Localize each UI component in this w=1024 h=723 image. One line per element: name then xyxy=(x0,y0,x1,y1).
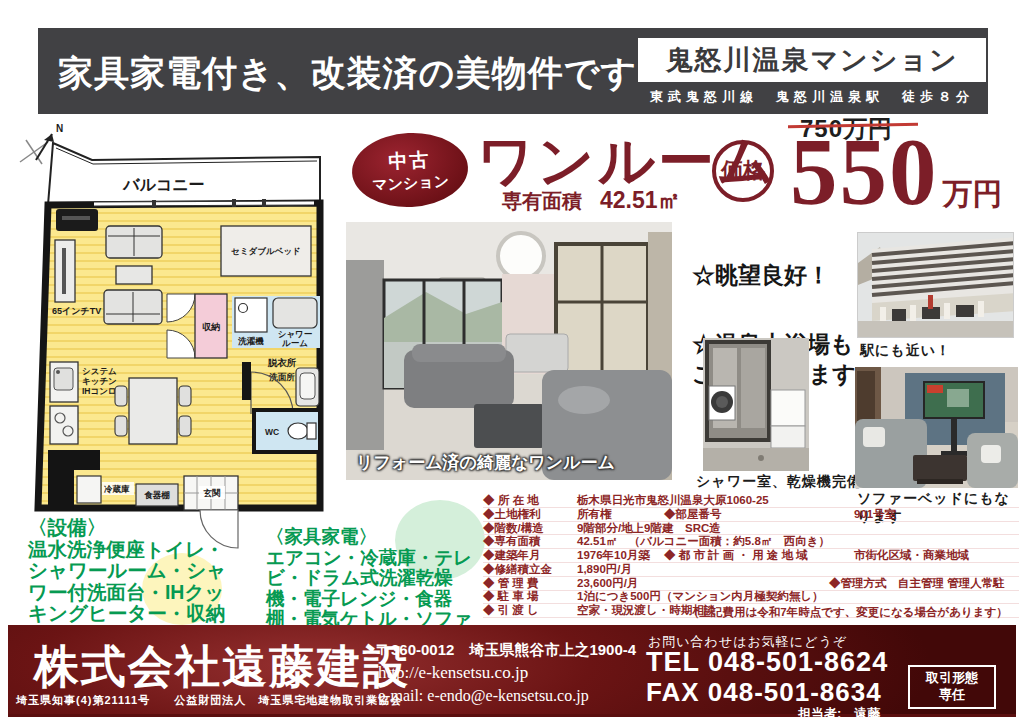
furniture-title: 〈家具家電〉 xyxy=(266,527,488,548)
floor-plan: N バルコニー 65インチTV セミダブルベッド 収納 xyxy=(14,118,336,552)
deal-type-box: 取引形態 専任 xyxy=(908,665,996,709)
shower-photo-caption: シャワー室、乾燥機完備 xyxy=(696,473,862,491)
building-photo-caption: 駅にも近い！ xyxy=(860,342,951,360)
fax-number: FAX 048-501-8634 xyxy=(646,677,882,708)
fridge-label: 冷蔵庫 xyxy=(104,484,130,494)
headline: 家具家電付き、改装済の美物件です xyxy=(58,50,637,97)
balcony-label: バルコニー xyxy=(122,176,205,193)
washer-label: 洗濯機 xyxy=(237,336,264,346)
closet-label: 収納 xyxy=(202,322,220,332)
main-room-photo: リフォーム済の綺麗なワンルーム xyxy=(346,222,672,480)
kitchen-label: システム xyxy=(82,366,117,376)
dressing-room-label: 脱衣所 xyxy=(267,357,297,368)
equipment-title: 〈設備〉 xyxy=(28,517,232,539)
details-note: （上記費用は令和7年時点です、変更になる場合があります） xyxy=(688,605,1008,620)
tv-label: 65インチTV xyxy=(52,306,101,316)
property-details-table: ◆ 所 在 地栃木県日光市鬼怒川温泉大原1060-25◆土地権利所有権◆部屋番号… xyxy=(483,494,1019,618)
sofa-photo xyxy=(855,367,1018,488)
agent-name: 担当者: 遠藤 xyxy=(798,705,880,723)
property-name-box: 鬼怒川温泉マンション xyxy=(638,38,986,82)
company-address: 〒360-0012 埼玉県熊谷市上之1900-4 xyxy=(376,641,636,660)
company-email: e-mail: e-endo@e-kensetsu.co.jp xyxy=(378,687,589,705)
flyer-page: 家具家電付き、改装済の美物件です 鬼怒川温泉マンション 東武鬼怒川線 鬼怒川温泉… xyxy=(0,0,1024,723)
license-line: 埼玉県知事(4)第21111号 公益財団法人 埼玉県宅地建物取引業協会 xyxy=(16,693,402,708)
wc-label: WC xyxy=(265,427,279,437)
access-line: 東武鬼怒川線 鬼怒川温泉駅 徒歩８分 xyxy=(638,88,986,106)
company-name: 株式会社遠藤建設 xyxy=(34,637,410,697)
price-stamp: 価格 xyxy=(712,140,774,202)
cupboard-label: 食器棚 xyxy=(144,490,170,500)
bed-label: セミダブルベッド xyxy=(231,246,301,256)
company-url: http://e-kensetsu.co.jp xyxy=(378,663,528,683)
svg-text:キッチン: キッチン xyxy=(82,376,117,386)
entrance-label: 玄関 xyxy=(203,488,222,498)
tel-number: TEL 048-501-8624 xyxy=(646,647,888,678)
top-banner: 家具家電付き、改装済の美物件です 鬼怒川温泉マンション 東武鬼怒川線 鬼怒川温泉… xyxy=(38,28,988,114)
main-photo-caption: リフォーム済の綺麗なワンルーム xyxy=(356,451,615,474)
shower-photo xyxy=(703,338,809,471)
deal-type-label: 取引形態 xyxy=(926,670,978,687)
highlight-view: ☆眺望良好！ xyxy=(692,261,856,290)
property-name: 鬼怒川温泉マンション xyxy=(665,42,958,78)
svg-text:N: N xyxy=(56,123,63,134)
footer-banner: 株式会社遠藤建設 埼玉県知事(4)第21111号 公益財団法人 埼玉県宅地建物取… xyxy=(8,625,1016,717)
deal-type-value: 専任 xyxy=(939,687,965,704)
exclusive-area: 専有面積 42.51㎡ xyxy=(502,185,681,216)
svg-text:ルーム: ルーム xyxy=(281,338,308,348)
current-price: 550 万円 xyxy=(790,122,1003,222)
used-mansion-badge: 中古 マンション xyxy=(350,130,470,210)
svg-text:IHコンロ: IHコンロ xyxy=(82,386,117,396)
building-photo xyxy=(857,232,1014,338)
